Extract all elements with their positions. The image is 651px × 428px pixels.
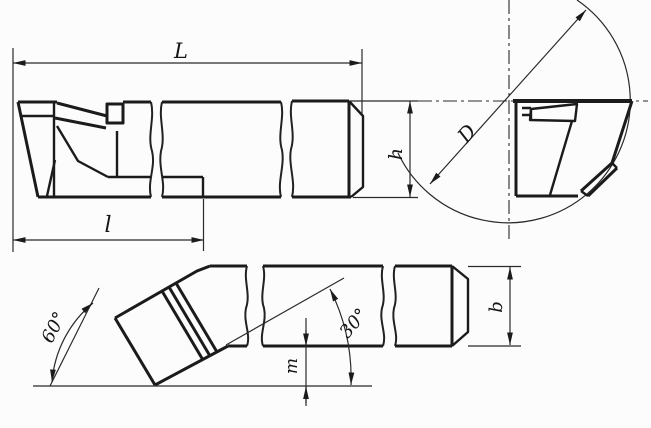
braze-seam-stripe xyxy=(169,287,210,356)
dimension-label-b: b xyxy=(486,301,507,313)
insert-top-edge xyxy=(57,103,107,116)
break-line xyxy=(290,101,293,197)
centerlines xyxy=(350,0,648,240)
dimension-m: m xyxy=(282,318,306,406)
drawing-sheet: L l h D b m 60° 30° xyxy=(0,0,651,428)
insert-tip-block xyxy=(107,104,123,123)
dimension-D: D xyxy=(430,10,586,184)
dimension-b: b xyxy=(468,267,521,347)
braze-seam-stripe xyxy=(176,283,217,352)
dimension-angle-60: 60° xyxy=(33,288,372,386)
break-line xyxy=(381,266,384,346)
butt-chamfer xyxy=(349,101,363,197)
dimension-label-m: m xyxy=(282,358,302,374)
break-line xyxy=(393,266,396,346)
dimension-l: l xyxy=(13,199,204,251)
end-view xyxy=(513,101,632,196)
break-line xyxy=(160,102,163,197)
braze-seam-stripe xyxy=(162,291,203,360)
dimension-line xyxy=(430,10,586,184)
technical-drawing: L l h D b m 60° 30° xyxy=(0,0,651,428)
end-right-edge xyxy=(612,101,632,163)
dimension-label-30deg: 30° xyxy=(335,304,372,342)
dimension-label-l: l xyxy=(104,213,111,238)
end-braze-seam xyxy=(550,121,572,195)
break-line xyxy=(150,102,153,197)
butt-chamfer xyxy=(452,266,468,346)
corner-chamfer-joins xyxy=(581,163,617,196)
dimension-label-h: h xyxy=(385,148,407,160)
dimension-label-L: L xyxy=(173,39,188,63)
dimension-L: L xyxy=(13,39,362,252)
break-line xyxy=(280,102,283,197)
dimension-label-60deg: 60° xyxy=(38,309,71,347)
angle-reference-line xyxy=(226,278,344,345)
braze-seam-line xyxy=(57,126,108,177)
insert-bottom-edge xyxy=(55,118,106,128)
break-line xyxy=(262,266,265,346)
head-front-edge xyxy=(115,318,155,385)
end-insert-plate xyxy=(530,104,577,121)
dimension-label-D: D xyxy=(452,119,481,148)
side-view xyxy=(18,101,363,197)
